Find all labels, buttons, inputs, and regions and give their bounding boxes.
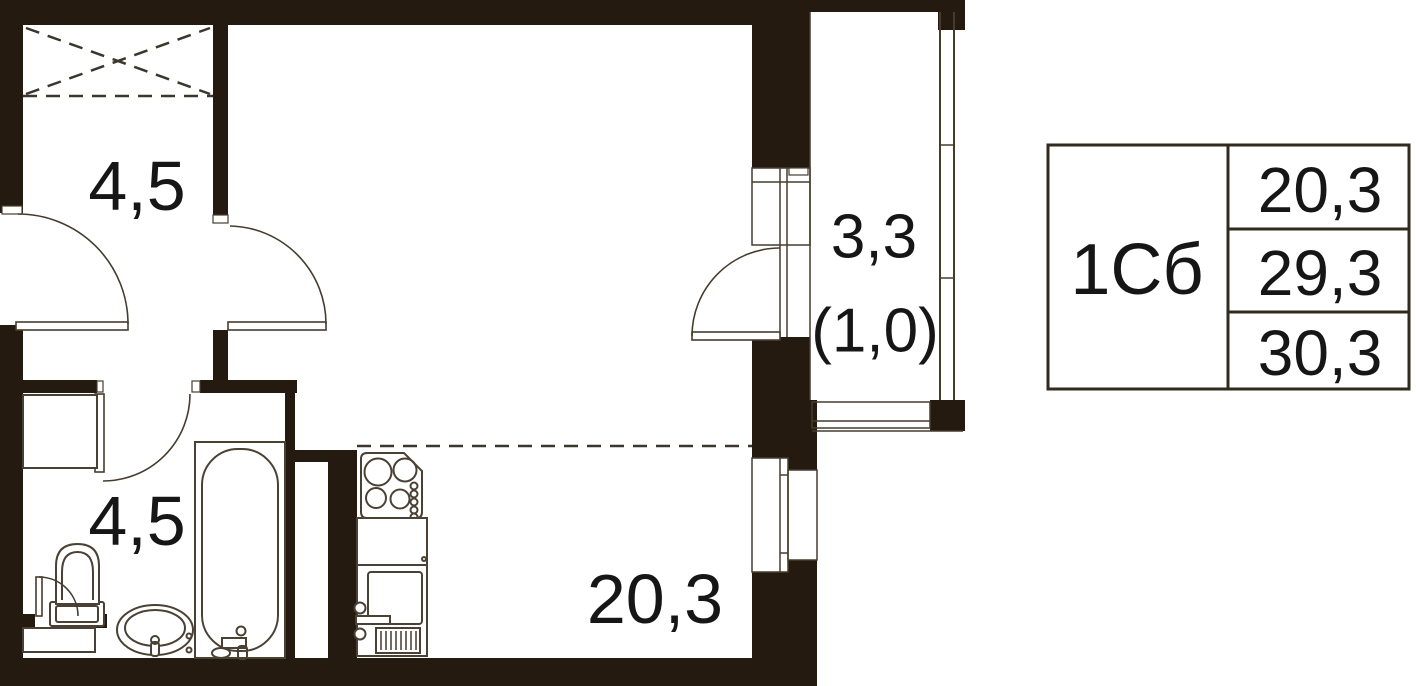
bathroom-sink: [117, 605, 193, 656]
wall-left-upper: [0, 0, 23, 213]
room-door-swing-arc: [230, 226, 326, 324]
apartment-area-value: 29,3: [1258, 237, 1383, 309]
entrance-door-jamb: [2, 206, 22, 214]
loggia-coeff-area-label: (1,0): [811, 297, 938, 366]
entrance-door-swing-arc: [18, 214, 128, 324]
loggia-corner-bottom-right: [930, 400, 965, 431]
loggia-bottom-glazing: [812, 402, 930, 428]
floorplan-drawing: 4,5 4,5 20,3 3,3 (1,0) 1Сб 20,3 29,3 30,…: [0, 0, 1416, 686]
kitchen-sink-unit: [355, 565, 428, 656]
wall-loggia-partition-lower: [752, 337, 810, 400]
counter-top: [357, 518, 427, 565]
room-door-leaf: [228, 322, 326, 330]
loggia-door-swing-arc: [692, 248, 780, 336]
bathroom-area-label: 4,5: [88, 482, 185, 560]
wall-bathroom-top-right: [200, 380, 297, 393]
wall-bathroom-right: [285, 392, 295, 658]
loggia-door-leaf: [692, 332, 780, 340]
loggia-window-door-block: [692, 168, 810, 340]
wall-loggia-partition-upper: [752, 25, 810, 168]
wall-left-lower: [0, 325, 23, 686]
shaft-box: [23, 628, 95, 652]
floorplan-page: 4,5 4,5 20,3 3,3 (1,0) 1Сб 20,3 29,3 30,…: [0, 0, 1416, 686]
wall-kitchen-side: [328, 450, 357, 658]
wall-right-pier-top: [788, 458, 817, 470]
loggia-window: [752, 168, 810, 245]
wall-hall-room-upper: [213, 25, 228, 223]
wall-right-below-loggia: [752, 400, 817, 458]
loggia-corner-top-right: [938, 0, 965, 30]
kitchen-faucet-handle-2: [355, 629, 366, 640]
hallway-wardrobe: [23, 28, 213, 96]
wall-right-pier-bottom: [788, 560, 817, 658]
wall-right-below-window: [752, 572, 788, 662]
bathtub: [195, 442, 285, 659]
wall-loggia-top: [810, 0, 938, 12]
wall-bottom: [0, 658, 817, 686]
kitchen-faucet-spout: [356, 616, 390, 624]
kitchen-counter: [357, 518, 427, 565]
sink-detail-dot-2: [187, 648, 192, 653]
bathroom-door-swing-arc: [103, 394, 190, 481]
hallway-area-label: 4,5: [88, 147, 185, 225]
wall-top: [0, 0, 810, 25]
living-room-window: [752, 458, 817, 572]
wall-bathroom-top-left: [23, 380, 97, 393]
room-door-jamb: [213, 215, 228, 223]
washing-machine: [23, 395, 97, 468]
window-outer-recess: [788, 470, 817, 560]
loggia-area-label: 3,3: [831, 203, 917, 272]
stove: [361, 453, 422, 521]
total-area-value: 30,3: [1258, 317, 1383, 389]
living-kitchen-area-label: 20,3: [587, 560, 723, 638]
entrance-door-leaf: [16, 322, 128, 330]
living-area-value: 20,3: [1258, 154, 1383, 226]
kitchen-faucet-handle-1: [355, 603, 366, 614]
shaft-stub-left: [23, 614, 35, 628]
shaft-hatch-leaf: [36, 577, 42, 616]
info-table: 1Сб 20,3 29,3 30,3: [1048, 145, 1409, 389]
bathroom-door-jamb-left: [97, 381, 103, 392]
loggia-door-jamb: [789, 168, 808, 175]
bathroom-door-jamb-right: [192, 381, 200, 392]
plan-code-label: 1Сб: [1070, 230, 1203, 310]
